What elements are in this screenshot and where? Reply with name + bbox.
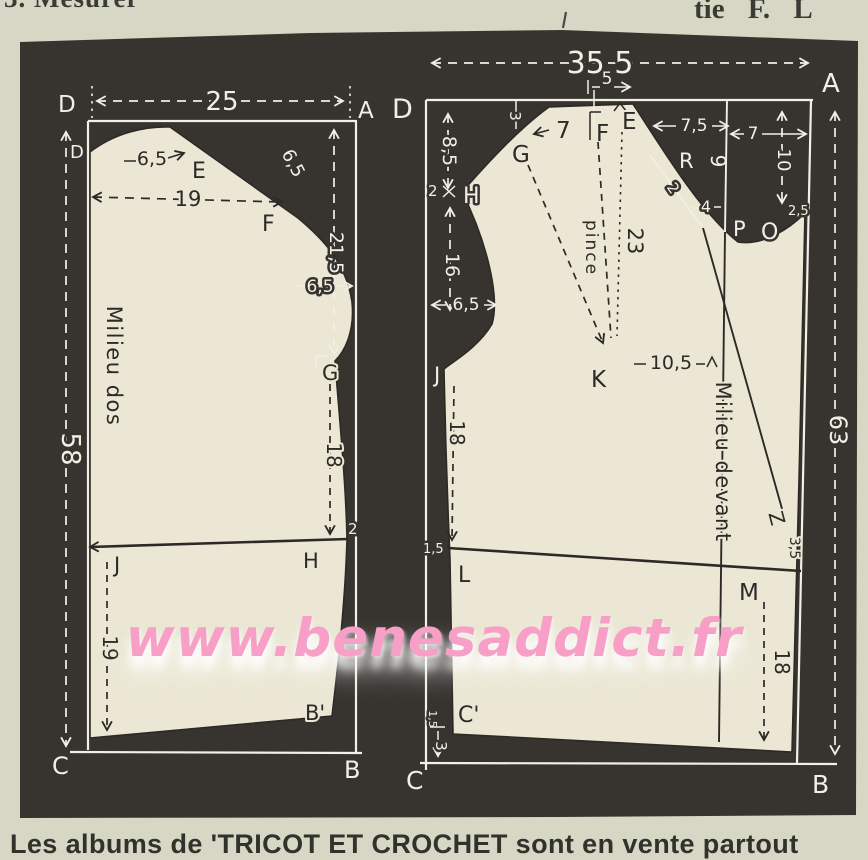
back-underarm-waist-dim: 18 <box>322 442 346 467</box>
point-label-c-inner-front: C' <box>458 703 479 728</box>
point-label-d-front: D <box>392 94 413 125</box>
front-neck-depth-dim: 8,5 <box>438 136 460 166</box>
dart-label: pince <box>581 220 601 276</box>
back-piece-title: Milieu dos <box>102 306 126 427</box>
watermark: www.benesaddict.fr <box>0 608 868 669</box>
point-label-c-front: C <box>406 766 423 795</box>
front-hem-1-5-dim: 1,5 <box>426 710 439 728</box>
scanned-magazine-page: { "page": { "top_left_text": "3. Mesurer… <box>0 0 868 852</box>
back-armhole-width-dim: 6,5 <box>306 277 333 297</box>
point-label-l-front: L <box>458 563 471 588</box>
back-armhole-depth-dim: 21,5 <box>325 232 347 274</box>
point-label-b-front: B <box>812 770 829 799</box>
point-label-k-front: K <box>591 367 607 393</box>
point-label-j-front: J <box>432 363 440 387</box>
front-j-waist-dim: 18 <box>445 420 469 445</box>
point-label-e-front: E <box>622 109 637 135</box>
point-label-o-front: O <box>761 220 778 245</box>
pen-mark <box>563 12 566 28</box>
front-hem-3-dim: 3 <box>432 741 450 751</box>
front-z-offset-dim: 3,5 <box>786 537 802 559</box>
front-armhole-dim: 16 <box>441 253 463 277</box>
point-label-h-front: H <box>463 184 480 209</box>
point-label-b-inner-back: B' <box>305 701 325 725</box>
front-band-width-dim: 7 <box>748 124 759 144</box>
front-armhole-width-dim: 6,5 <box>452 295 479 315</box>
front-dart-to-center-dim: 10,5 <box>650 352 692 374</box>
point-label-h-back: H <box>303 549 319 573</box>
point-label-d-inner-back: D <box>70 142 84 163</box>
front-dart-length-dim: 23 <box>623 228 647 255</box>
front-length-dim: 63 <box>824 415 852 446</box>
point-label-j-back: J <box>112 553 120 577</box>
point-label-a-front: A <box>822 69 840 99</box>
point-label-e-back: E <box>192 159 206 184</box>
point-label-m-front: M <box>739 580 759 606</box>
back-neck-dim: 6,5 <box>137 148 167 170</box>
front-waist-1-5-dim: 1,5 <box>423 542 444 557</box>
front-e-to-r-dim: 7,5 <box>680 116 707 136</box>
front-width-dim: 35,5 <box>567 46 634 81</box>
point-label-b-back: B <box>344 756 360 784</box>
back-width-dim: 25 <box>205 87 238 117</box>
front-g-to-f-dim: 7 <box>556 118 571 144</box>
point-label-d-outer-back: D <box>58 92 76 118</box>
front-top-notch-dim: 5 <box>602 69 613 89</box>
point-label-f-back: F <box>262 212 275 237</box>
point-label-g-front: G <box>512 142 530 168</box>
point-label-r-front: R <box>679 149 694 173</box>
point-label-c-back: C <box>52 752 69 780</box>
pattern-diagram: 25 D A D 58 6,5 E 19 F 6,5 21,5 6,5 G 18… <box>0 0 868 852</box>
front-side-2-dim: 2 <box>428 182 438 200</box>
back-shoulder-dim: 19 <box>175 187 202 211</box>
back-waist-offset-dim: 2 <box>348 520 358 538</box>
point-label-g-back: G <box>322 361 338 385</box>
back-length-dim: 58 <box>55 432 85 465</box>
point-label-a-back: A <box>358 98 374 124</box>
front-shoulder-notch-dim: 3 <box>506 111 524 121</box>
front-diag-4-dim: 4 <box>701 197 711 216</box>
page-footer-text: Les albums de 'TRICOT ET CROCHET sont en… <box>10 829 799 860</box>
point-label-p-front: P <box>733 217 746 241</box>
front-band-depth-dim: 10 <box>773 149 794 172</box>
front-piece-title: Milieu devant <box>711 381 735 542</box>
front-band-2-5-dim: 2,5 <box>788 204 809 219</box>
